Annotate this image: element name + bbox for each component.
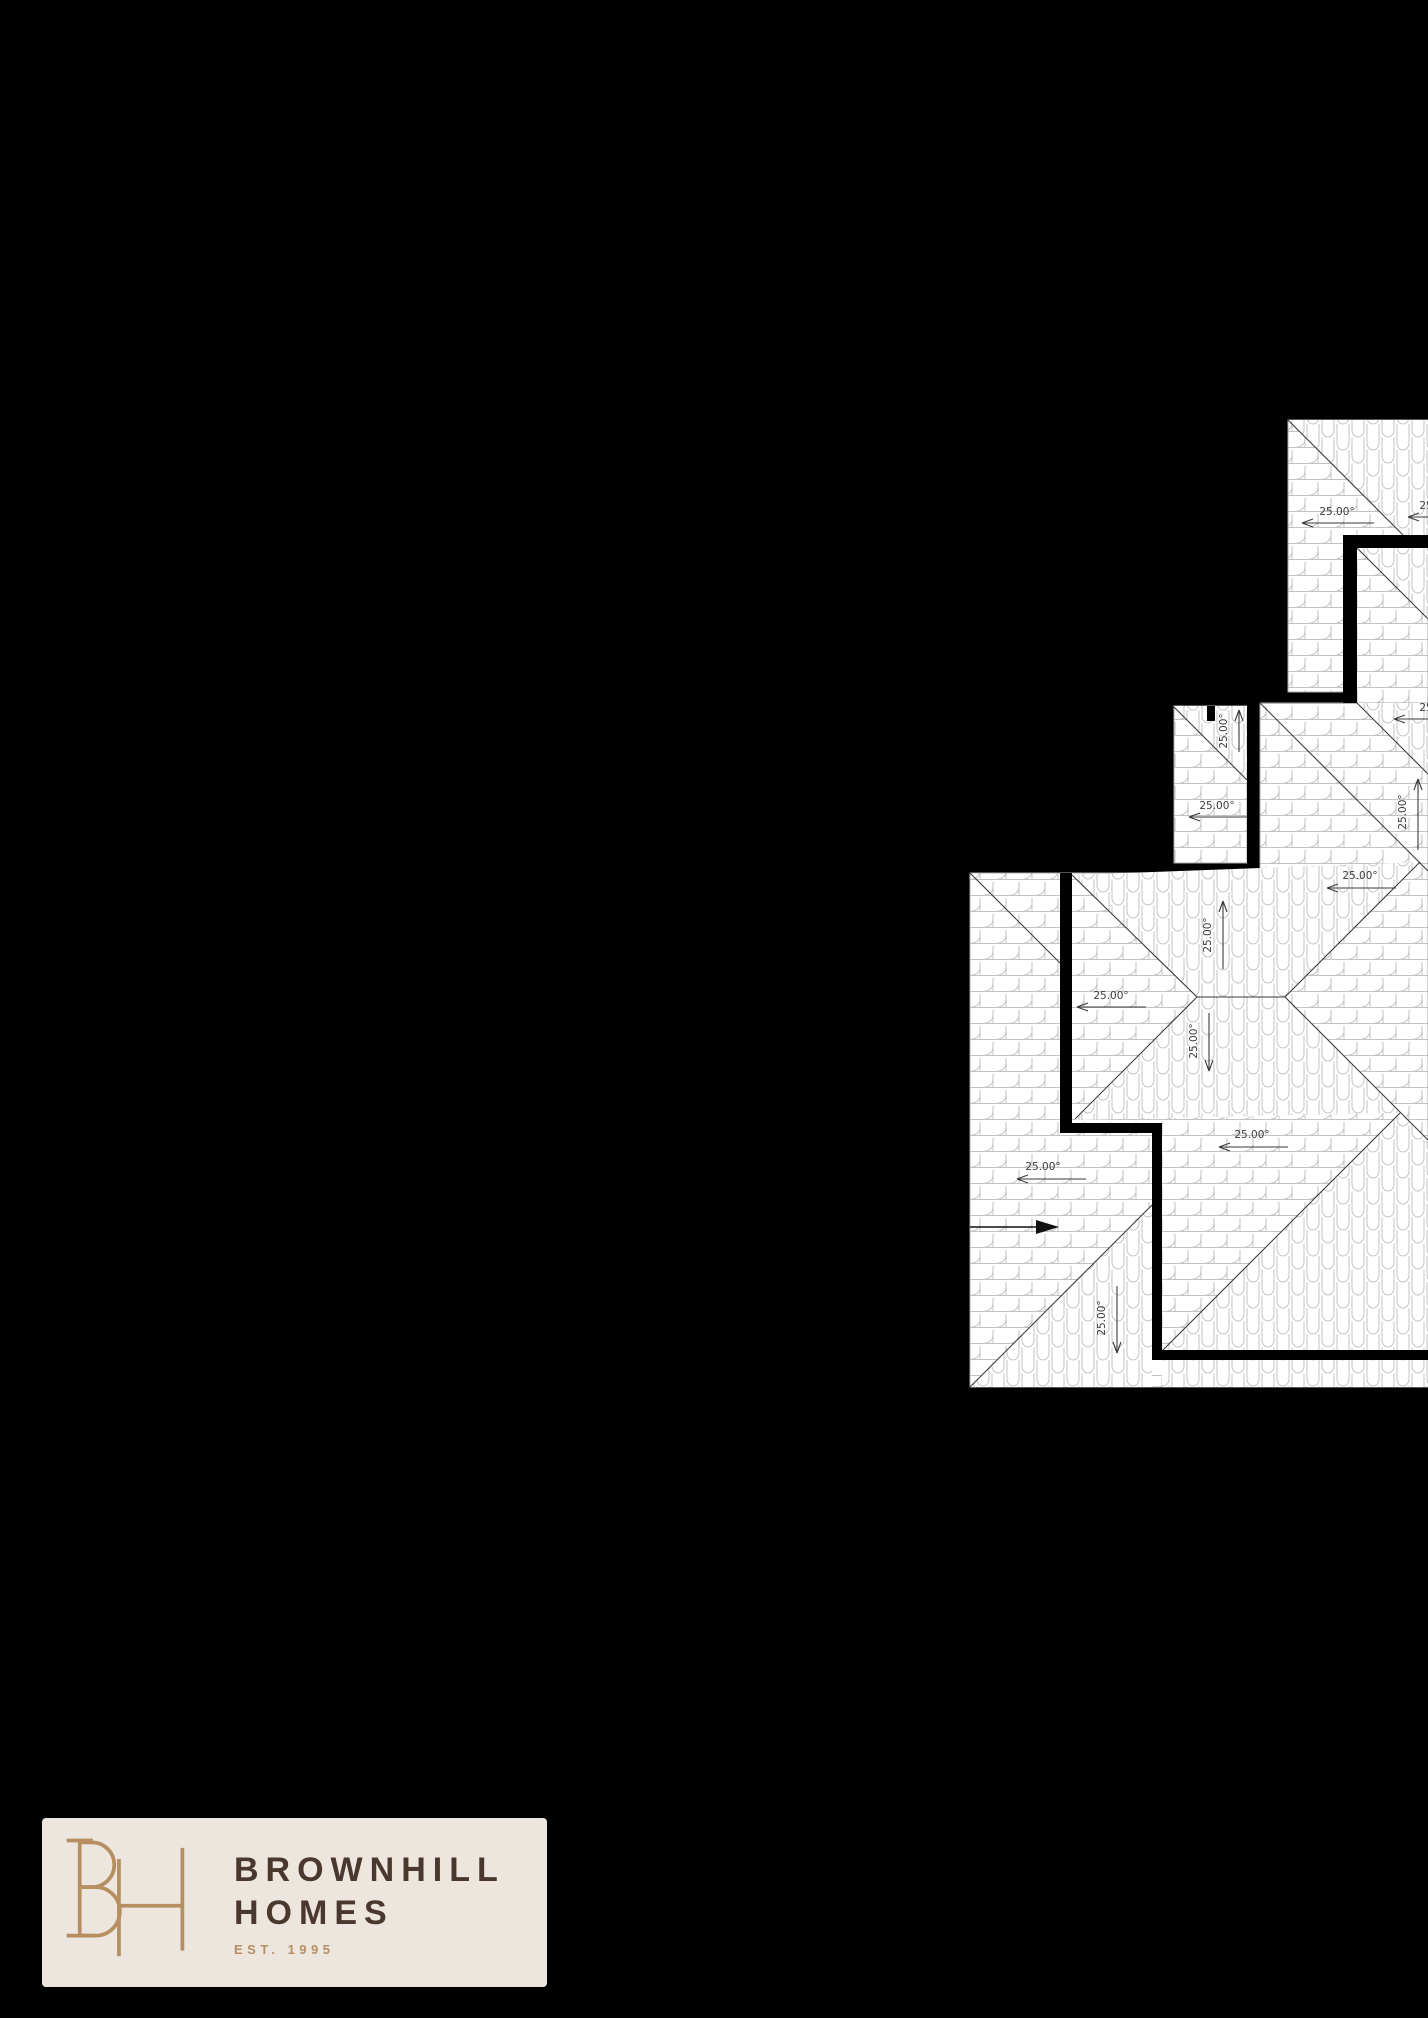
- svg-text:25.00°: 25.00°: [1342, 870, 1377, 882]
- logo-monogram: [56, 1833, 208, 1973]
- roof-plan: 25.00°25.00°25.00°25.00°25.00°25.00°25.0…: [0, 0, 1428, 2018]
- svg-text:25.00°: 25.00°: [1419, 702, 1428, 714]
- logo-card: BROWNHILL HOMES EST. 1995: [42, 1818, 547, 1987]
- svg-text:25.00°: 25.00°: [1218, 713, 1230, 748]
- svg-text:25.00°: 25.00°: [1025, 1161, 1060, 1173]
- svg-text:25.00°: 25.00°: [1199, 800, 1234, 812]
- brand-name: BROWNHILL: [234, 1849, 505, 1892]
- svg-text:25.00°: 25.00°: [1202, 917, 1214, 952]
- svg-text:25.00°: 25.00°: [1096, 1300, 1108, 1335]
- svg-text:25.00°: 25.00°: [1419, 500, 1428, 512]
- svg-text:25.00°: 25.00°: [1319, 506, 1354, 518]
- svg-text:25.00°: 25.00°: [1093, 990, 1128, 1002]
- brand-name-secondary: HOMES: [234, 1892, 505, 1935]
- logo-wordmark: BROWNHILL HOMES EST. 1995: [234, 1849, 505, 1957]
- svg-text:25.00°: 25.00°: [1397, 794, 1409, 829]
- svg-text:25.00°: 25.00°: [1188, 1023, 1200, 1058]
- svg-text:25.00°: 25.00°: [1234, 1129, 1269, 1141]
- page-background: 25.00°25.00°25.00°25.00°25.00°25.00°25.0…: [0, 0, 1428, 2018]
- established-text: EST. 1995: [234, 1942, 505, 1957]
